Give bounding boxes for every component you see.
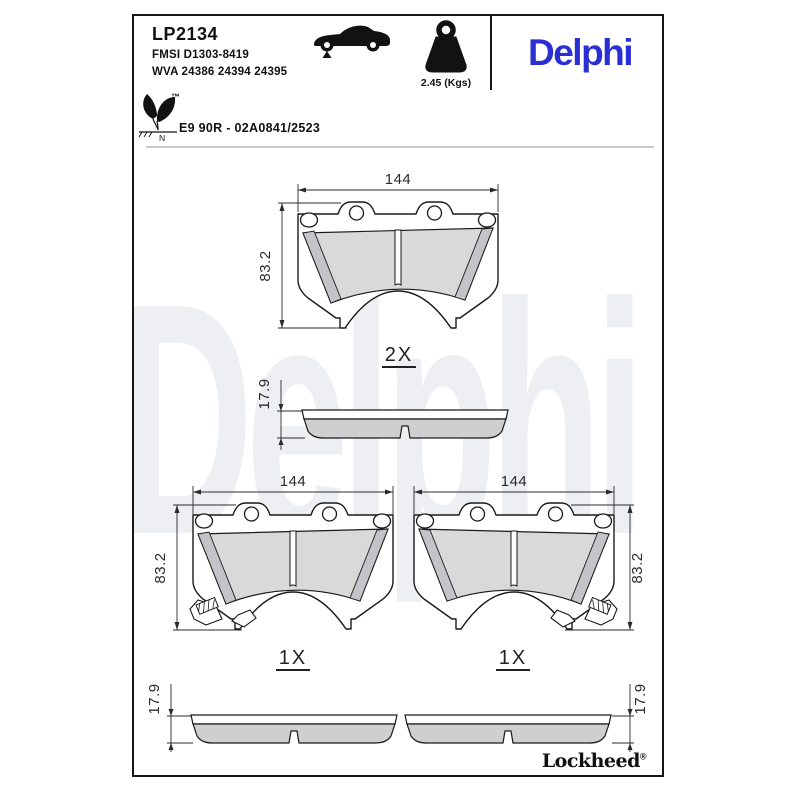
trademark-symbol: ™ <box>171 92 180 102</box>
dim-height-bottom-left: 83.2 <box>152 552 169 583</box>
profile-drawing-bottom-left: 17.9 <box>145 662 400 757</box>
profile-drawing-bottom-right: 17.9 <box>402 662 657 757</box>
dim-height-bottom-right: 83.2 <box>629 552 646 583</box>
header-rule <box>146 146 654 148</box>
dim-thickness-bottom-right: 17.9 <box>632 683 649 714</box>
pad-drawing-bottom-right: 144 83.2 <box>402 462 657 644</box>
pad-drawing-top: 144 83.2 <box>255 160 510 360</box>
dim-width-bottom-right: 144 <box>501 473 528 490</box>
lockheed-wordmark: Lockheed <box>542 750 640 772</box>
wva-numbers: WVA 24386 24394 24395 <box>152 66 287 78</box>
datasheet-canvas: { "colors": { "brand_blue": "#2a2fd4", "… <box>0 0 800 800</box>
datasheet-page: Delphi <box>132 14 664 777</box>
pad-drawing-bottom-left: 144 83.2 <box>150 462 405 644</box>
weight-value: 2.45 (Kgs) <box>396 77 496 89</box>
header-divider <box>490 16 492 90</box>
dim-thickness-bottom-left: 17.9 <box>146 683 163 714</box>
dim-thickness-top: 17.9 <box>256 378 273 409</box>
registered-symbol: ® <box>640 752 646 762</box>
quantity-top-label: 2X <box>382 344 416 368</box>
approval-number: E9 90R - 02A0841/2523 <box>179 121 320 135</box>
delphi-logo: Delphi <box>528 32 632 74</box>
eco-mark-letter: N <box>159 133 165 143</box>
fmsi-number: FMSI D1303-8419 <box>152 49 249 61</box>
dim-height-top: 83.2 <box>257 250 274 281</box>
part-number: LP2134 <box>152 24 218 45</box>
lockheed-logo: Lockheed® <box>542 750 646 772</box>
car-icon <box>310 19 394 59</box>
profile-drawing-top: 17.9 <box>255 368 512 460</box>
dim-width-top: 144 <box>385 171 412 188</box>
front-axle-marker <box>323 51 332 58</box>
dim-width-bottom-left: 144 <box>280 473 307 490</box>
quantity-top: 2X <box>362 344 436 367</box>
weight-icon <box>421 20 471 76</box>
